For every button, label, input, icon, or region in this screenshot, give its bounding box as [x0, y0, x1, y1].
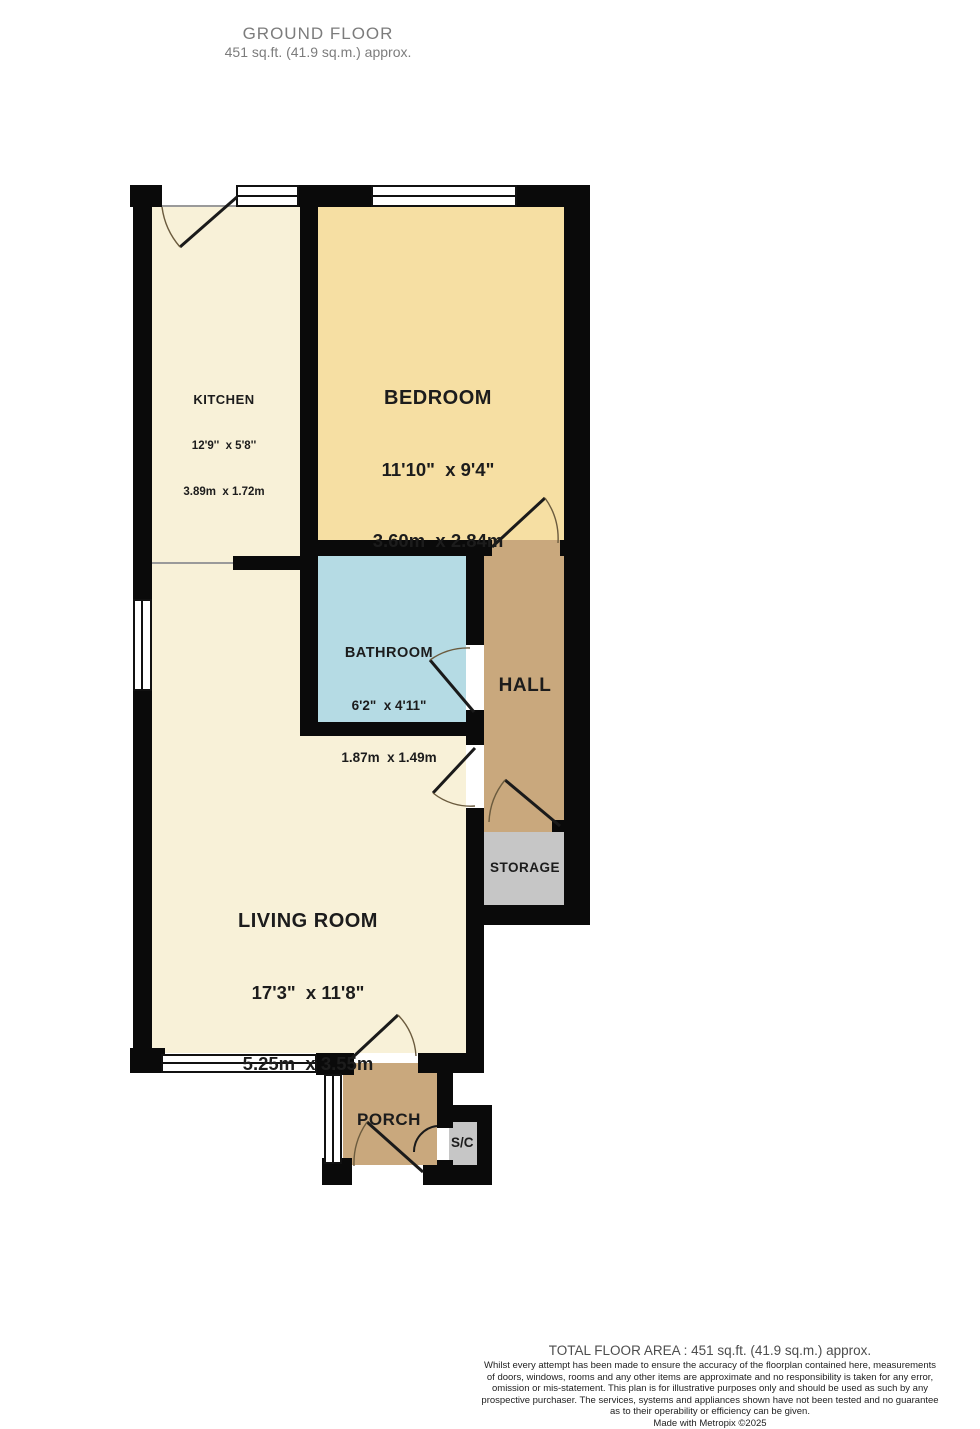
storage-label: STORAGE [490, 860, 560, 876]
living-room-name: LIVING ROOM [238, 909, 378, 933]
living-room-dims-imperial: 17'3" x 11'8" [238, 982, 378, 1005]
porch-label: PORCH [357, 1110, 421, 1131]
bathroom-name: BATHROOM [341, 645, 436, 663]
total-floor-area: TOTAL FLOOR AREA : 451 sq.ft. (41.9 sq.m… [410, 1343, 980, 1358]
disclaimer-line: as to their operability or efficiency ca… [400, 1406, 980, 1418]
bedroom-dims-metric: 3.60m x 2.84m [373, 530, 504, 553]
metropix-credit: Made with Metropix ©2025 [400, 1418, 980, 1429]
hall-label: HALL [499, 674, 552, 697]
page-subtitle: 451 sq.ft. (41.9 sq.m.) approx. [225, 44, 412, 60]
kitchen-name: KITCHEN [183, 392, 264, 408]
page-title: GROUND FLOOR [243, 24, 394, 44]
store-cupboard-label-box: S/C [449, 1122, 478, 1164]
kitchen-dims-imperial: 12'9'' x 5'8'' [183, 439, 264, 453]
disclaimer-line: of doors, windows, rooms and any other i… [400, 1372, 980, 1384]
floorplan [0, 0, 980, 1428]
bedroom-dims-imperial: 11'10" x 9'4" [373, 459, 504, 482]
bathroom-dims-metric: 1.87m x 1.49m [341, 750, 436, 766]
disclaimer-line: omission or mis-statement. This plan is … [400, 1383, 980, 1395]
bedroom-name: BEDROOM [373, 386, 504, 410]
bathroom-label: BATHROOM 6'2" x 4'11" 1.87m x 1.49m [341, 610, 436, 784]
living-room-label: LIVING ROOM 17'3" x 11'8" 5.25m x 3.55m [238, 860, 378, 1100]
kitchen-label: KITCHEN 12'9'' x 5'8'' 3.89m x 1.72m [183, 360, 264, 515]
store-cupboard-name: S/C [449, 1122, 478, 1164]
disclaimer-line: prospective purchaser. The services, sys… [400, 1395, 980, 1407]
disclaimer-line: Whilst every attempt has been made to en… [400, 1360, 980, 1372]
bathroom-dims-imperial: 6'2" x 4'11" [341, 698, 436, 714]
disclaimer: Whilst every attempt has been made to en… [400, 1360, 980, 1429]
bedroom-label: BEDROOM 11'10" x 9'4" 3.60m x 2.84m [373, 337, 504, 577]
living-room-dims-metric: 5.25m x 3.55m [238, 1053, 378, 1076]
kitchen-dims-metric: 3.89m x 1.72m [183, 485, 264, 499]
